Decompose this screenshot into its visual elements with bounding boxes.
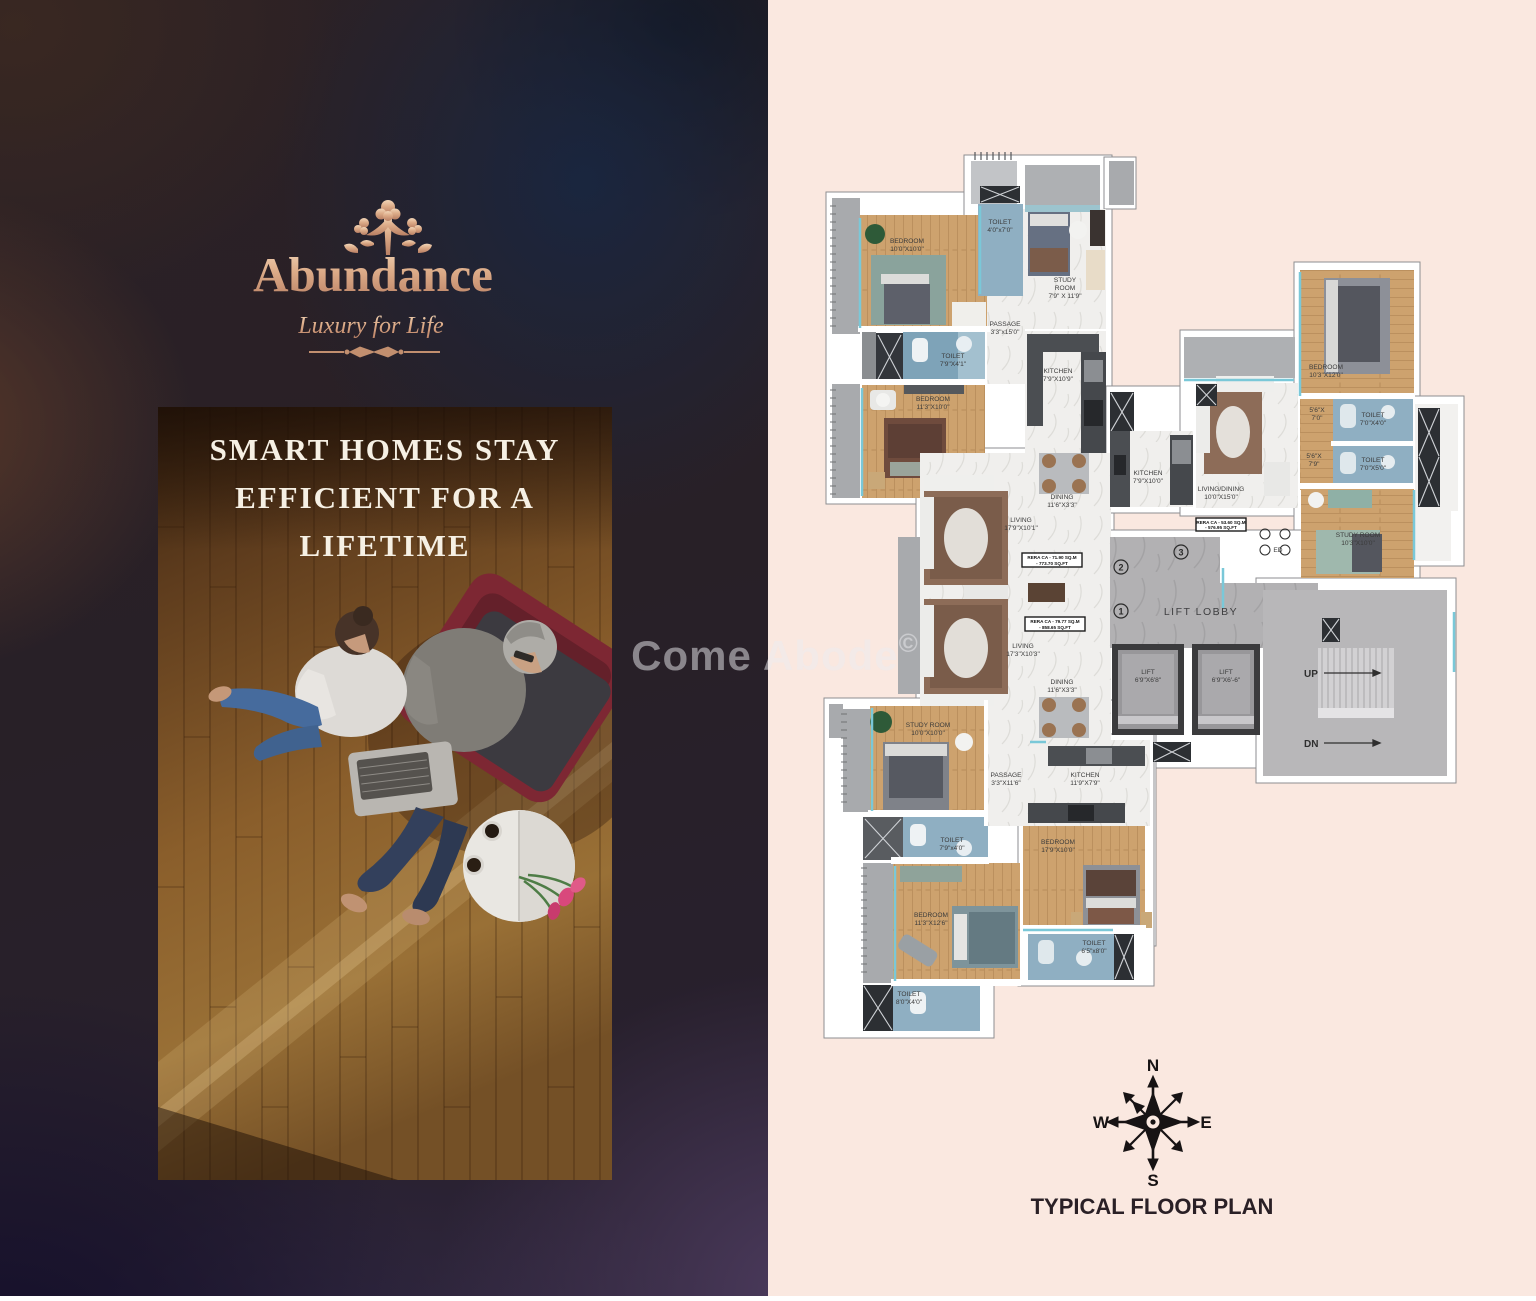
svg-text:Luxury for Life: Luxury for Life — [297, 313, 444, 339]
svg-text:7'0"X5'0": 7'0"X5'0" — [1360, 465, 1387, 472]
svg-text:STUDY ROOM: STUDY ROOM — [906, 722, 951, 729]
svg-text:11'9"X7'9": 11'9"X7'9" — [1070, 780, 1100, 787]
svg-text:- 773.70 SQ.FT: - 773.70 SQ.FT — [1036, 561, 1068, 566]
svg-text:BEDROOM: BEDROOM — [1309, 364, 1343, 371]
svg-text:DN: DN — [1304, 739, 1318, 750]
svg-text:PASSAGE: PASSAGE — [990, 772, 1022, 779]
svg-text:TOILET: TOILET — [989, 219, 1012, 226]
svg-text:LIFETIME: LIFETIME — [299, 528, 470, 563]
svg-text:5'6"X: 5'6"X — [1306, 453, 1322, 460]
svg-text:BEDROOM: BEDROOM — [914, 912, 948, 919]
svg-text:10'0"X10'0": 10'0"X10'0" — [890, 246, 924, 253]
svg-text:TOILET: TOILET — [942, 353, 965, 360]
svg-text:LIVING/DINING: LIVING/DINING — [1198, 486, 1245, 493]
svg-text:7'9"X10'0": 7'9"X10'0" — [1133, 478, 1164, 485]
svg-text:11'3"X12'6": 11'3"X12'6" — [914, 920, 948, 927]
svg-text:17'9"X10'0": 17'9"X10'0" — [1041, 847, 1075, 854]
svg-text:BEDROOM: BEDROOM — [1041, 839, 1075, 846]
svg-text:KITCHEN: KITCHEN — [1044, 368, 1073, 375]
svg-text:N: N — [1147, 1056, 1159, 1075]
svg-text:BEDROOM: BEDROOM — [890, 238, 924, 245]
svg-text:10'3"X12'0": 10'3"X12'0" — [1309, 372, 1343, 379]
svg-text:KITCHEN: KITCHEN — [1071, 772, 1100, 779]
svg-text:RERA CA - 71.90 SQ.M: RERA CA - 71.90 SQ.M — [1027, 555, 1076, 560]
svg-text:EFFICIENT FOR A: EFFICIENT FOR A — [235, 480, 535, 515]
svg-text:E: E — [1200, 1113, 1211, 1132]
svg-text:8'0"X4'0": 8'0"X4'0" — [896, 999, 923, 1006]
svg-text:DINING: DINING — [1050, 679, 1073, 686]
svg-text:LIVING: LIVING — [1010, 517, 1032, 524]
svg-text:TOILET: TOILET — [1362, 412, 1385, 419]
svg-text:1: 1 — [1118, 607, 1123, 617]
svg-text:TOILET: TOILET — [1362, 457, 1385, 464]
svg-text:ROOM: ROOM — [1055, 285, 1076, 292]
svg-text:STUDY ROOM: STUDY ROOM — [1336, 532, 1381, 539]
svg-text:11'6"X3'3": 11'6"X3'3" — [1047, 502, 1077, 509]
svg-text:3: 3 — [1178, 548, 1183, 558]
svg-text:7'9"x4'0": 7'9"x4'0" — [939, 845, 965, 852]
svg-text:7'9": 7'9" — [1309, 461, 1321, 468]
svg-text:3'3"X11'6": 3'3"X11'6" — [991, 780, 1021, 787]
svg-text:Abundance: Abundance — [253, 247, 493, 302]
svg-text:DINING: DINING — [1050, 494, 1073, 501]
svg-text:STUDY: STUDY — [1054, 277, 1077, 284]
svg-text:3'3"x15'0": 3'3"x15'0" — [991, 329, 1020, 336]
svg-text:SMART HOMES STAY: SMART HOMES STAY — [210, 432, 561, 467]
svg-text:7'9" X 11'9": 7'9" X 11'9" — [1048, 293, 1082, 300]
svg-text:- 576.95 SQ.FT: - 576.95 SQ.FT — [1205, 525, 1237, 530]
svg-text:7'0": 7'0" — [1312, 415, 1324, 422]
svg-text:17'9"X10'1": 17'9"X10'1" — [1004, 525, 1038, 532]
svg-text:10'0"X15'0": 10'0"X15'0" — [1204, 494, 1238, 501]
svg-text:4'0"x7'0": 4'0"x7'0" — [987, 227, 1013, 234]
svg-text:2: 2 — [1118, 563, 1123, 573]
svg-text:S: S — [1147, 1171, 1158, 1190]
svg-text:10'0"X10'0": 10'0"X10'0" — [911, 730, 945, 737]
svg-text:W: W — [1093, 1113, 1110, 1132]
svg-text:PASSAGE: PASSAGE — [989, 321, 1021, 328]
svg-text:7'9"X10'9": 7'9"X10'9" — [1043, 376, 1074, 383]
svg-text:5'6"X: 5'6"X — [1309, 407, 1325, 414]
svg-text:6'5"x8'0": 6'5"x8'0" — [1081, 948, 1107, 955]
svg-text:11'6"X3'3": 11'6"X3'3" — [1047, 687, 1077, 694]
svg-text:TOILET: TOILET — [898, 991, 921, 998]
svg-text:KITCHEN: KITCHEN — [1134, 470, 1163, 477]
svg-text:11'3"X10'0": 11'3"X10'0" — [916, 404, 950, 411]
svg-text:7'9"X4'1": 7'9"X4'1" — [940, 361, 967, 368]
svg-text:10'3"X10'0": 10'3"X10'0" — [1341, 540, 1375, 547]
svg-text:7'0"X4'0": 7'0"X4'0" — [1360, 420, 1387, 427]
svg-text:TOILET: TOILET — [1083, 940, 1106, 947]
svg-text:BEDROOM: BEDROOM — [916, 396, 950, 403]
svg-text:TOILET: TOILET — [941, 837, 964, 844]
svg-text:LIFT LOBBY: LIFT LOBBY — [1164, 606, 1238, 618]
svg-text:RERA CA - 79.77 SQ.M: RERA CA - 79.77 SQ.M — [1030, 619, 1079, 624]
